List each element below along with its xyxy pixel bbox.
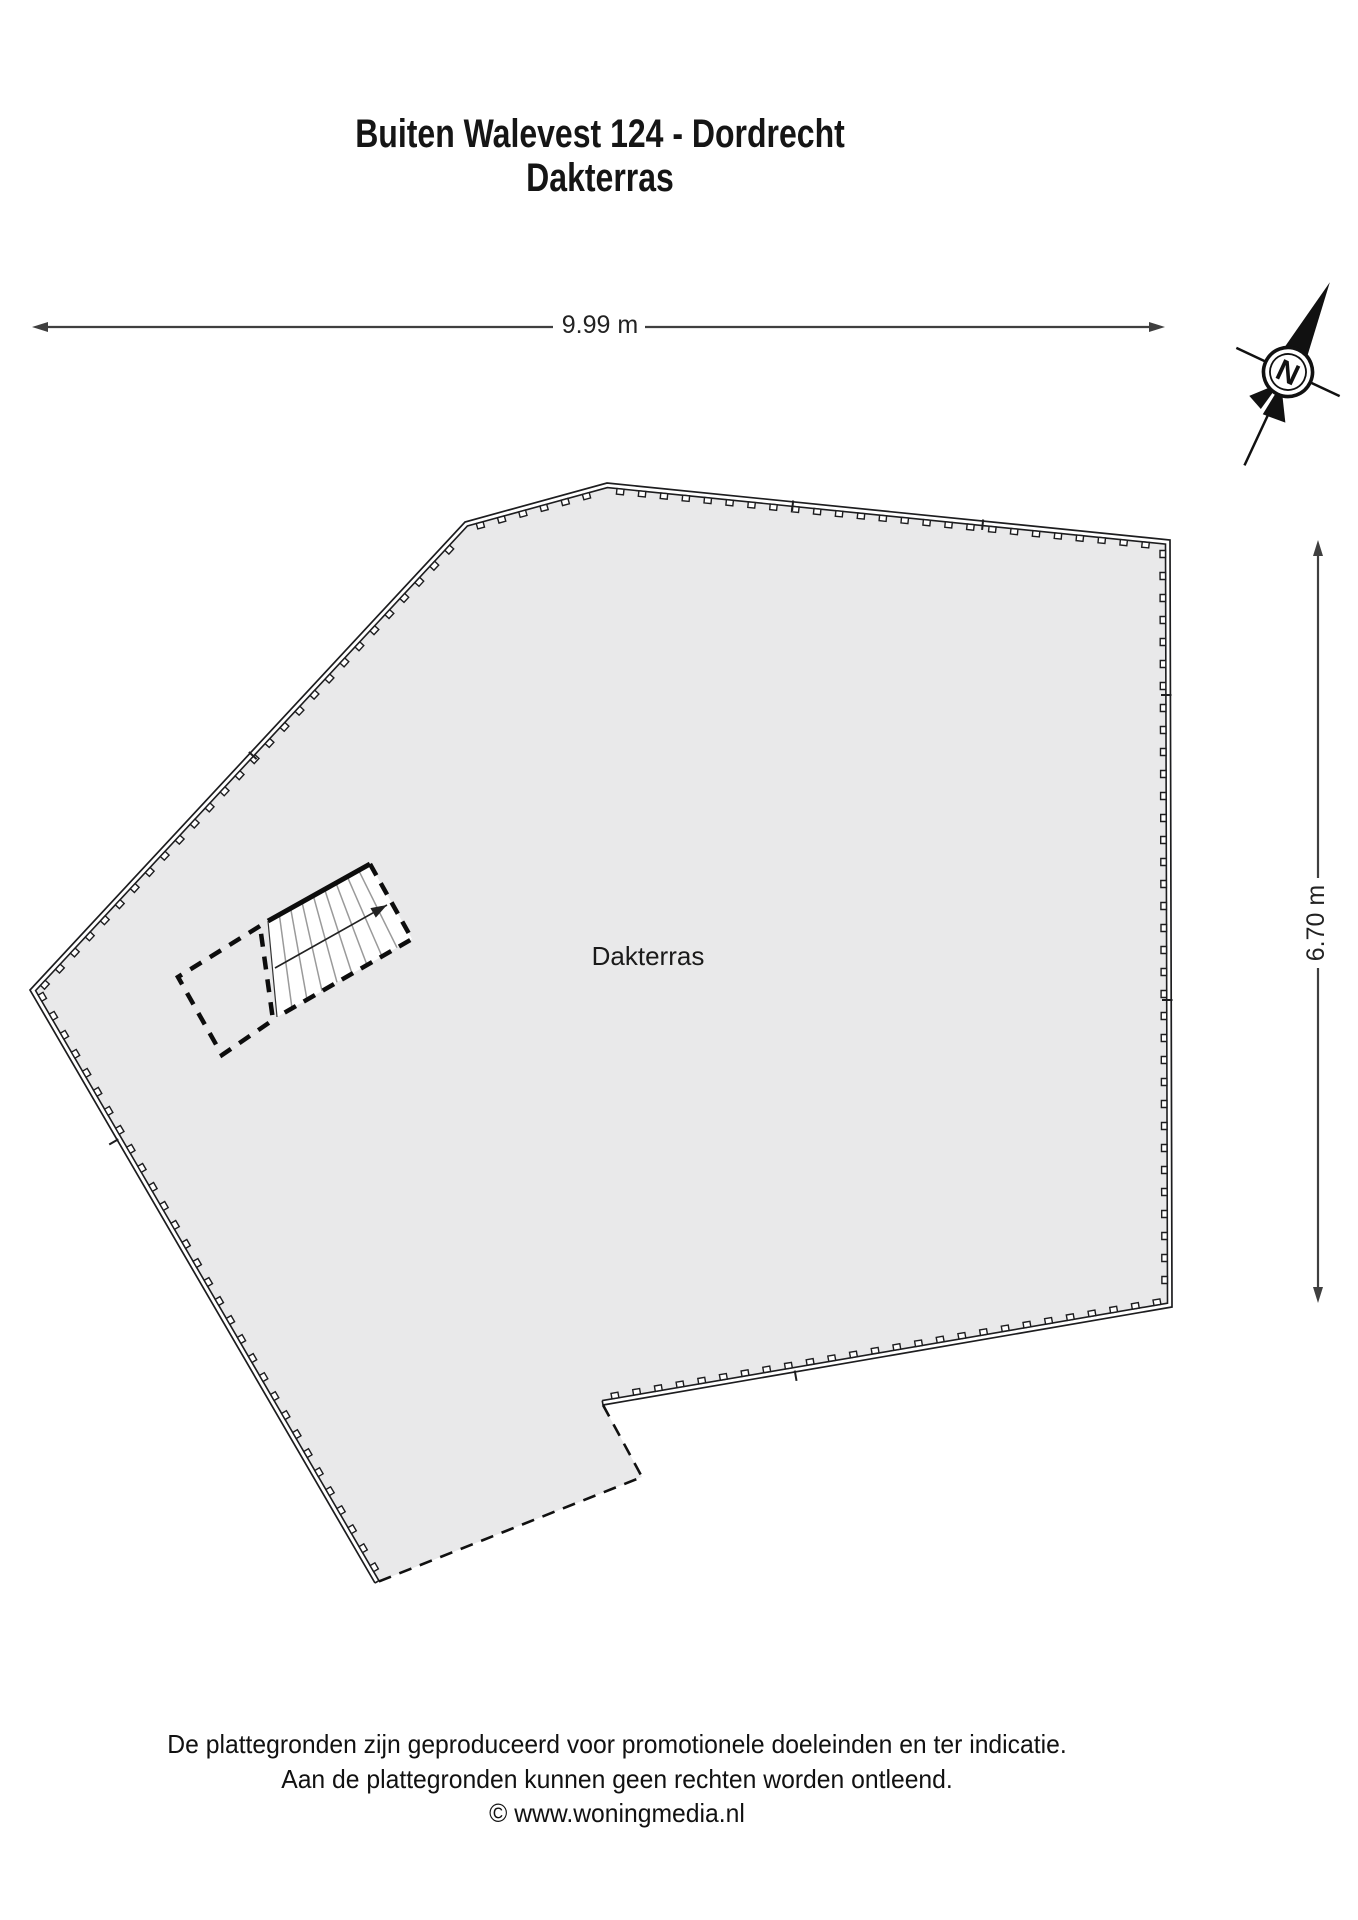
dimension-vertical-label: 6.70 m <box>1300 863 1332 983</box>
compass-icon: N <box>1193 258 1358 489</box>
room-label: Dakterras <box>498 941 798 972</box>
dimension-horizontal-label: 9.99 m <box>0 311 1200 340</box>
footer-line-3: © www.woningmedia.nl <box>31 1796 1203 1831</box>
floorplan-area <box>30 483 1173 1583</box>
footer-line-1: De plattegronden zijn geproduceerd voor … <box>31 1727 1203 1762</box>
page-title: Buiten Walevest 124 - Dordrecht Dakterra… <box>0 112 1200 200</box>
footer: De plattegronden zijn geproduceerd voor … <box>0 1727 1234 1831</box>
footer-line-2: Aan de plattegronden kunnen geen rechten… <box>31 1762 1203 1797</box>
title-line-1: Buiten Walevest 124 - Dordrecht <box>120 112 1080 156</box>
page: N Buiten Walevest 124 - Dordrecht Dakter… <box>0 0 1358 1920</box>
title-line-2: Dakterras <box>120 156 1080 200</box>
